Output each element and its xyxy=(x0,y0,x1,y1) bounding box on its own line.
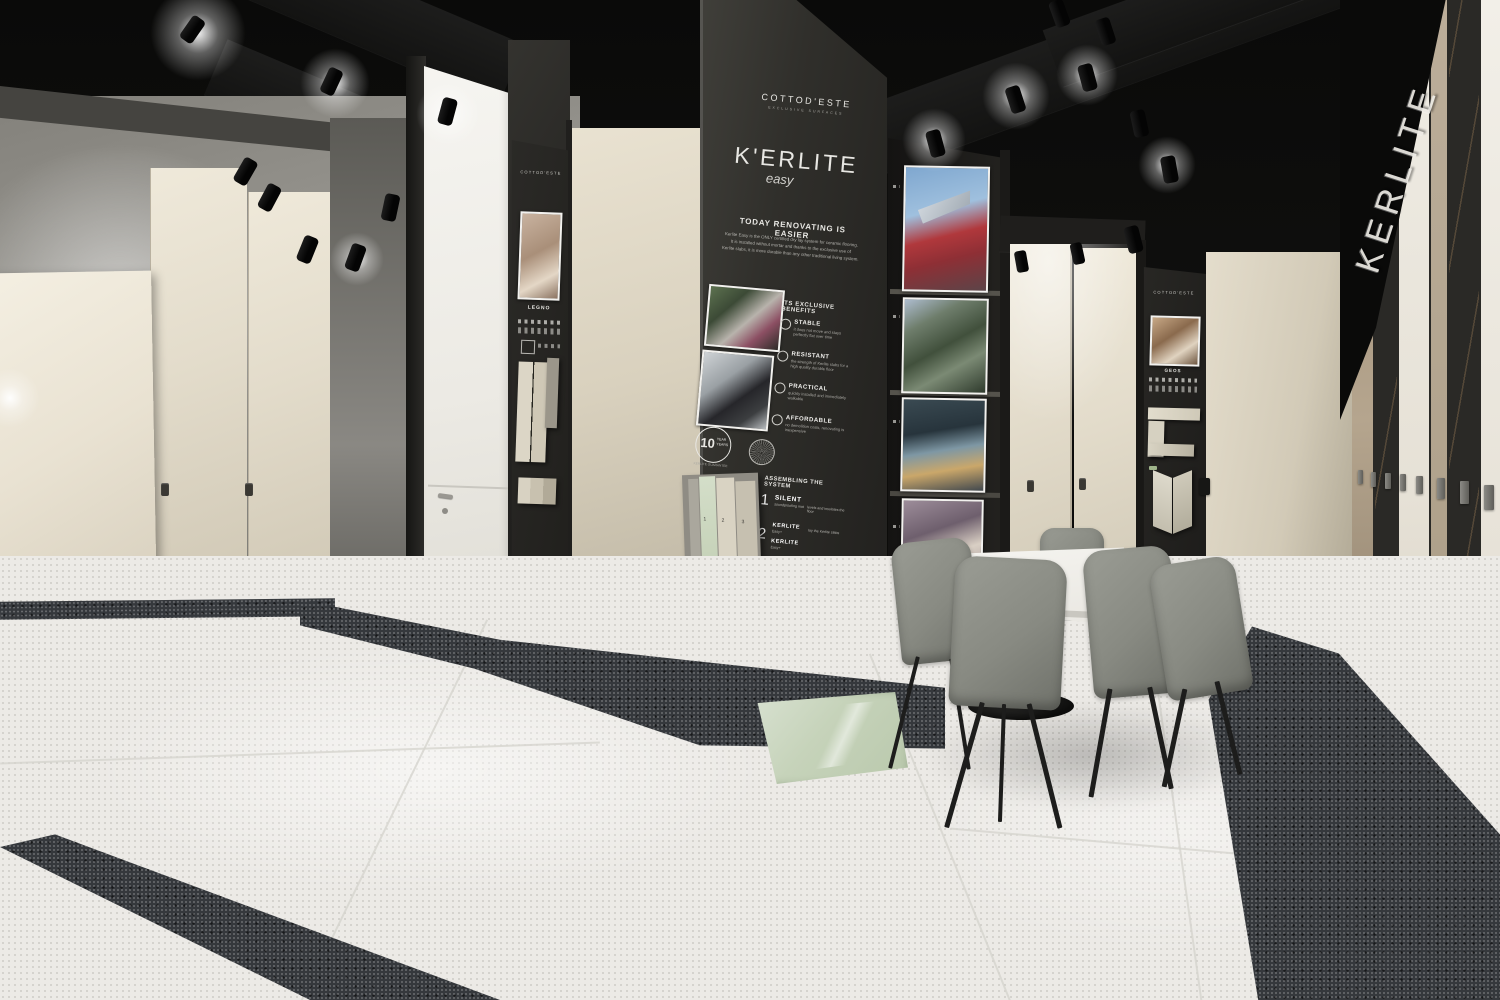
skirting xyxy=(0,598,335,620)
panel-handle xyxy=(245,483,253,496)
benefit-item: PRACTICAL quickly installed and immediat… xyxy=(775,382,853,389)
benefit-icon xyxy=(777,350,789,362)
spec-icons xyxy=(538,344,560,349)
assembly-step: 1 SILENT soundproofing mat levels and in… xyxy=(759,491,847,522)
panel-sheen xyxy=(1010,244,1138,424)
chevron-sample xyxy=(1173,470,1192,534)
warranty-unit2: YEARS xyxy=(716,442,728,447)
benefits-title: ITS EXCLUSIVE BENEFITS xyxy=(781,300,862,319)
sample-tiles xyxy=(515,362,548,463)
benefit-desc: the strength of Kerlite slabs for a high… xyxy=(790,358,853,373)
photo-caption-marks xyxy=(893,185,900,188)
slab-handle xyxy=(1460,481,1469,504)
step-sub: Easy+ xyxy=(770,545,780,550)
benefit-item: AFFORDABLE no demolition costs, renovati… xyxy=(772,414,850,421)
sample-tiles-e-shape xyxy=(1148,443,1194,456)
step-note: levels and insulates the floor xyxy=(807,505,848,516)
benefit-desc: it does not move and stays perfectly fla… xyxy=(793,326,856,341)
slab-handle xyxy=(1416,476,1423,494)
sample-tiles-small xyxy=(518,477,557,504)
step-sub: Easy+ xyxy=(772,529,782,534)
chair xyxy=(948,555,1068,711)
showroom-scene: COTTOD'ESTE LEGNO COTTOD'ESTE EXCLUSIVE … xyxy=(0,0,1500,1000)
certification-seal-icon xyxy=(745,435,778,468)
door-keyhole xyxy=(442,508,448,514)
photo-caption-marks xyxy=(893,315,900,318)
photo-pool-villa xyxy=(900,397,987,492)
benefit-icon xyxy=(774,382,786,394)
slab-handle xyxy=(1400,474,1406,491)
board-label: 1 xyxy=(703,516,706,522)
photo-caption-marks xyxy=(893,525,900,528)
benefit-icon xyxy=(780,318,792,330)
sample-tiles xyxy=(545,358,559,428)
step-note: lay the Kerlite slabs xyxy=(808,528,846,535)
warranty-note: KERLITE GUARANTEE xyxy=(687,461,733,469)
right-display-photo xyxy=(1149,315,1200,366)
benefit-icon xyxy=(771,414,783,426)
benefit-desc: quickly installed and immediately walkab… xyxy=(787,390,850,405)
chevron-sample xyxy=(1153,470,1172,534)
panel-handle xyxy=(1079,478,1086,490)
assembly-step: 2 KERLITE Easy+ lay the Kerlite slabs KE… xyxy=(756,521,844,558)
warranty-unit: YEAR xyxy=(717,437,727,442)
left-display-photo xyxy=(517,211,562,300)
panel-handle xyxy=(161,483,169,496)
slab-handle xyxy=(1358,470,1363,484)
photo-vintage-car xyxy=(696,350,774,432)
tile-panel xyxy=(150,168,247,600)
photo-red-building xyxy=(902,165,990,292)
slab-handle xyxy=(1484,485,1494,510)
sample-tiles-e-shape xyxy=(1148,407,1200,420)
benefit-item: RESISTANT the strength of Kerlite slabs … xyxy=(778,350,856,357)
photo-vertical-forest xyxy=(901,297,989,394)
warranty-value: 10 xyxy=(700,435,716,451)
spec-icons xyxy=(1149,385,1197,392)
slab-handle xyxy=(1385,473,1391,489)
photo-shop-interior xyxy=(704,284,785,352)
wall-plate xyxy=(1199,478,1210,495)
slab-handle xyxy=(1371,472,1376,487)
benefit-desc: no demolition costs, renovating is inexp… xyxy=(785,422,848,437)
board-label: 2 xyxy=(721,518,724,524)
tile-panel xyxy=(248,192,333,600)
photo-caption-marks xyxy=(893,420,900,423)
warranty-badge: 10 YEAR YEARS xyxy=(694,425,733,464)
format-diagram-icon xyxy=(521,340,535,354)
benefit-item: STABLE it does not move and stays perfec… xyxy=(781,318,859,325)
step-number: 1 xyxy=(760,491,770,509)
board-label: 3 xyxy=(742,519,745,525)
slab-handle xyxy=(1437,478,1445,499)
panel-handle xyxy=(1027,480,1034,492)
